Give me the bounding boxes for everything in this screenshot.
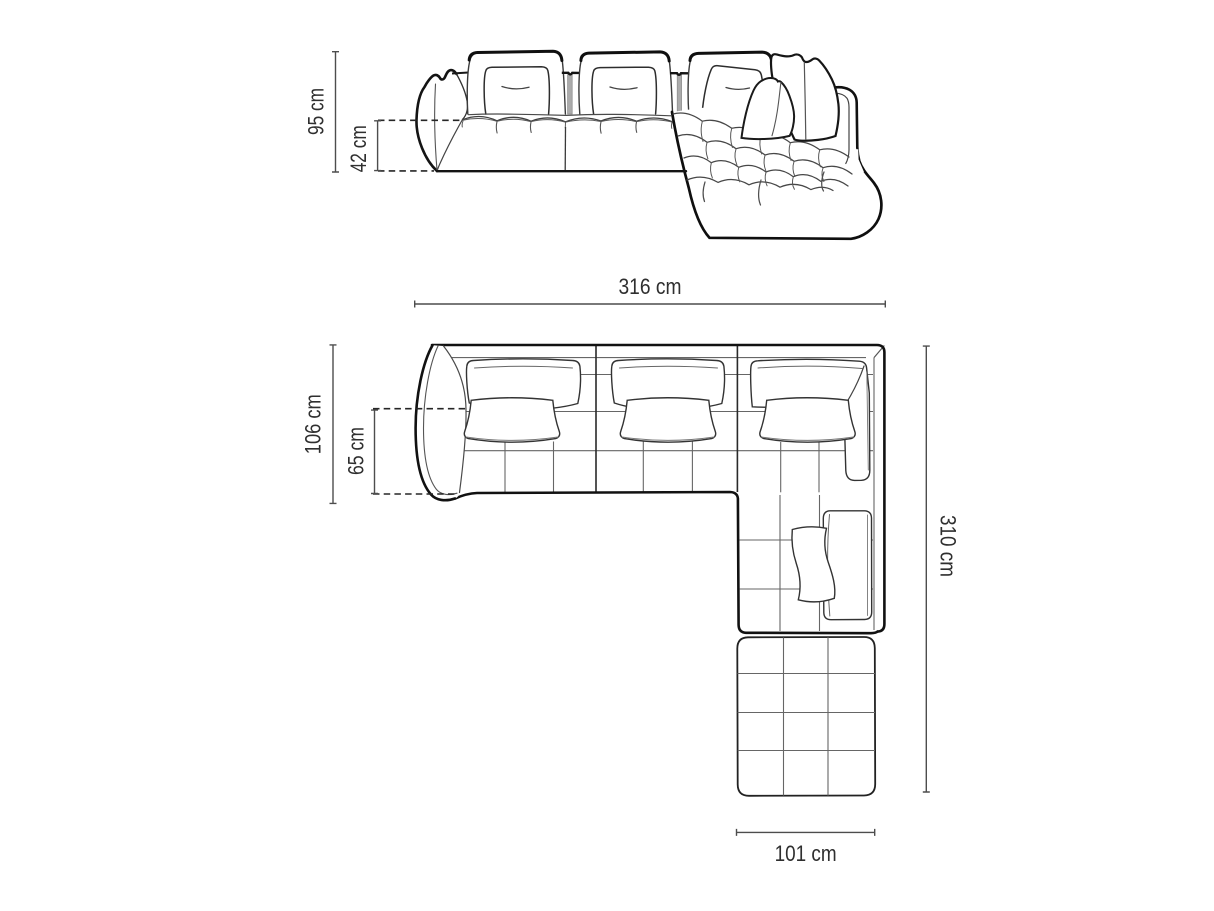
svg-text:42 cm: 42 cm — [346, 125, 371, 172]
svg-text:95 cm: 95 cm — [304, 88, 329, 135]
svg-text:101 cm: 101 cm — [775, 841, 837, 866]
svg-text:106 cm: 106 cm — [301, 394, 326, 454]
svg-text:316 cm: 316 cm — [619, 274, 682, 299]
svg-text:310 cm: 310 cm — [936, 515, 961, 577]
svg-text:65 cm: 65 cm — [344, 427, 369, 475]
